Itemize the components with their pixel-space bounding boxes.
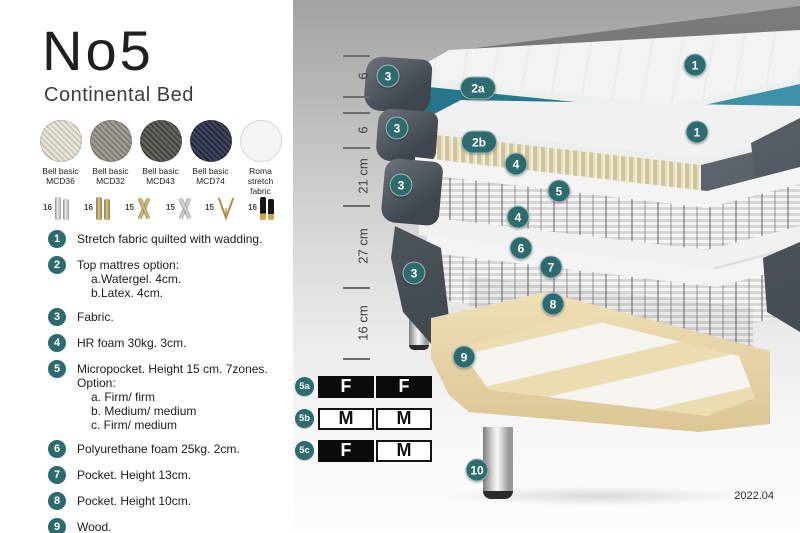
feature-number-badge: 9 bbox=[48, 518, 66, 533]
firmness-cell: M bbox=[376, 440, 432, 462]
feature-item: 8Pocket. Height 10cm. bbox=[48, 492, 288, 510]
fabric-label: Bell basicMCD32 bbox=[92, 166, 128, 186]
callout-1: 1 bbox=[686, 121, 709, 144]
cylinder-chrome-icon bbox=[54, 194, 70, 220]
feature-text: Micropocket. Height 15 cm. 7zones. Optio… bbox=[77, 360, 288, 432]
leg-option-cylinder-chrome: 16 bbox=[38, 194, 75, 220]
feature-number-badge: 7 bbox=[48, 466, 66, 484]
feature-text: Fabric. bbox=[77, 308, 114, 324]
leg-height-label: 15 bbox=[125, 203, 134, 212]
feature-item: 9Wood. bbox=[48, 518, 288, 533]
product-title: No5 bbox=[42, 18, 154, 83]
feature-number-badge: 2 bbox=[48, 256, 66, 274]
firmness-row-label: 5b bbox=[295, 409, 314, 428]
feature-text: Pocket. Height 13cm. bbox=[77, 466, 191, 482]
firmness-row: 5bMM bbox=[295, 407, 434, 430]
leg-height-label: 16 bbox=[43, 203, 52, 212]
fabric-option: Bell basicMCD74 bbox=[188, 120, 233, 197]
firmness-cell: F bbox=[376, 376, 432, 398]
callout-2b: 2b bbox=[461, 131, 497, 154]
feature-number-badge: 6 bbox=[48, 440, 66, 458]
fabric-label: Bell basicMCD36 bbox=[42, 166, 78, 186]
info-panel: No5 Continental Bed Bell basicMCD36Bell … bbox=[0, 0, 293, 533]
firmness-row-label: 5c bbox=[295, 441, 314, 460]
feature-number-badge: 1 bbox=[48, 230, 66, 248]
firmness-cell: F bbox=[318, 440, 374, 462]
leg-height-label: 15 bbox=[205, 203, 214, 212]
callout-5: 5 bbox=[548, 180, 571, 203]
fabric-swatch bbox=[240, 120, 282, 162]
feature-number-badge: 5 bbox=[48, 360, 66, 378]
callout-3: 3 bbox=[403, 262, 426, 285]
product-subtitle: Continental Bed bbox=[44, 84, 194, 107]
callout-3: 3 bbox=[386, 117, 409, 140]
cross-gold-icon bbox=[136, 194, 152, 220]
fabric-swatch bbox=[40, 120, 82, 162]
cylinder-black-gold-icon bbox=[259, 194, 275, 220]
feature-subitem: b.Latex. 4cm. bbox=[91, 286, 181, 300]
feature-item: 5Micropocket. Height 15 cm. 7zones. Opti… bbox=[48, 360, 288, 432]
callout-1: 1 bbox=[684, 54, 707, 77]
leg-height-label: 16 bbox=[248, 203, 257, 212]
fabric-option: Bell basicMCD32 bbox=[88, 120, 133, 197]
firmness-row: 5cFM bbox=[295, 439, 434, 462]
feature-subitem: b. Medium/ medium bbox=[91, 404, 288, 418]
callout-4: 4 bbox=[505, 153, 528, 176]
leg-options-row: 161615151516 bbox=[38, 194, 288, 220]
fabric-label: Bell basicMCD43 bbox=[142, 166, 178, 186]
callout-4: 4 bbox=[507, 206, 530, 229]
firmness-table: 5aFF5bMM5cFM bbox=[295, 375, 435, 467]
callout-10: 10 bbox=[466, 459, 489, 482]
callout-9: 9 bbox=[453, 346, 476, 369]
firmness-cell: M bbox=[318, 408, 374, 430]
feature-text: Stretch fabric quilted with wadding. bbox=[77, 230, 262, 246]
fabric-option: Bell basicMCD36 bbox=[38, 120, 83, 197]
hairpin-gold-icon bbox=[216, 194, 236, 220]
leg-option-cross-gold: 15 bbox=[120, 194, 157, 220]
fabric-swatch bbox=[90, 120, 132, 162]
feature-number-badge: 8 bbox=[48, 492, 66, 510]
callout-3: 3 bbox=[377, 65, 400, 88]
firmness-cell: F bbox=[318, 376, 374, 398]
feature-item: 6Polyurethane foam 25kg. 2cm. bbox=[48, 440, 288, 458]
fabric-options-row: Bell basicMCD36Bell basicMCD32Bell basic… bbox=[38, 120, 284, 197]
version-label: 2022.04 bbox=[734, 490, 774, 502]
leg-option-cross-silver: 15 bbox=[161, 194, 198, 220]
fabric-label: Romastretch fabric bbox=[238, 166, 283, 197]
product-infographic: No5 Continental Bed Bell basicMCD36Bell … bbox=[0, 0, 800, 533]
feature-item: 1Stretch fabric quilted with wadding. bbox=[48, 230, 288, 248]
fabric-label: Bell basicMCD74 bbox=[192, 166, 228, 186]
firmness-cell: M bbox=[376, 408, 432, 430]
leg-option-hairpin-gold: 15 bbox=[202, 194, 239, 220]
fabric-option: Bell basicMCD43 bbox=[138, 120, 183, 197]
callout-7: 7 bbox=[540, 256, 563, 279]
leg-option-cylinder-black-gold: 16 bbox=[243, 194, 280, 220]
feature-item: 2Top mattres option:a.Watergel. 4cm.b.La… bbox=[48, 256, 288, 300]
leg-height-label: 16 bbox=[84, 203, 93, 212]
callout-8: 8 bbox=[542, 293, 565, 316]
callout-2a: 2a bbox=[460, 77, 496, 100]
feature-item: 3Fabric. bbox=[48, 308, 288, 326]
feature-number-badge: 3 bbox=[48, 308, 66, 326]
leg-height-label: 15 bbox=[166, 203, 175, 212]
feature-subitem: c. Firm/ medium bbox=[91, 418, 288, 432]
bed-cutaway-diagram: 6621 cm27 cm16 cm 132a132b45346378910 5a… bbox=[293, 0, 800, 533]
feature-list: 1Stretch fabric quilted with wadding.2To… bbox=[48, 230, 288, 533]
callout-6: 6 bbox=[510, 237, 533, 260]
cylinder-brass-icon bbox=[95, 194, 111, 220]
feature-text: Polyurethane foam 25kg. 2cm. bbox=[77, 440, 240, 456]
fabric-swatch bbox=[190, 120, 232, 162]
feature-subitem: a. Firm/ firm bbox=[91, 390, 288, 404]
feature-text: Pocket. Height 10cm. bbox=[77, 492, 191, 508]
firmness-row-label: 5a bbox=[295, 377, 314, 396]
fabric-swatch bbox=[140, 120, 182, 162]
feature-text: HR foam 30kg. 3cm. bbox=[77, 334, 186, 350]
feature-number-badge: 4 bbox=[48, 334, 66, 352]
leg-option-cylinder-brass: 16 bbox=[79, 194, 116, 220]
callout-3: 3 bbox=[390, 174, 413, 197]
cross-silver-icon bbox=[177, 194, 193, 220]
feature-subitem: a.Watergel. 4cm. bbox=[91, 272, 181, 286]
feature-text: Wood. bbox=[77, 518, 111, 533]
fabric-option: Romastretch fabric bbox=[238, 120, 283, 197]
feature-text: Top mattres option:a.Watergel. 4cm.b.Lat… bbox=[77, 256, 181, 300]
firmness-row: 5aFF bbox=[295, 375, 434, 398]
feature-item: 4HR foam 30kg. 3cm. bbox=[48, 334, 288, 352]
feature-item: 7Pocket. Height 13cm. bbox=[48, 466, 288, 484]
